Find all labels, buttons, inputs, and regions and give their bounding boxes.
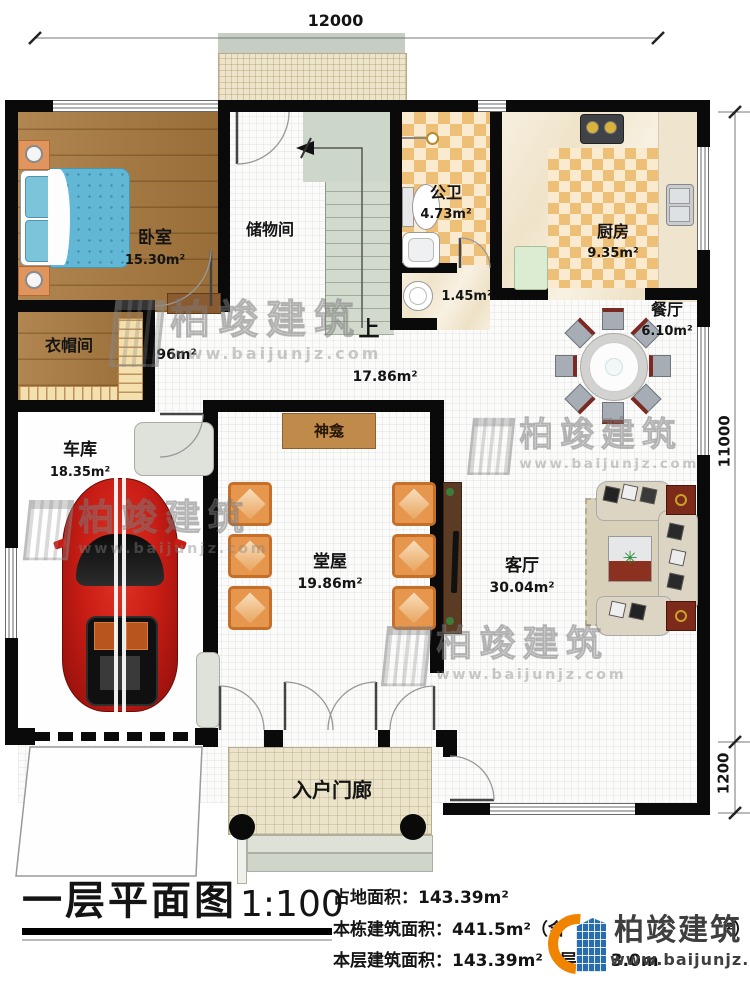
side-table [666, 485, 696, 515]
wash-area-label: 1.45m² [437, 289, 497, 305]
plant-icon [446, 488, 454, 496]
garage-label: 车库18.35m² [40, 440, 120, 483]
dim-top-label: 12000 [298, 11, 373, 31]
wall [5, 100, 18, 745]
wall [18, 300, 155, 312]
kitchen-label: 厨房9.35m² [577, 222, 649, 262]
dining-chair [602, 308, 624, 330]
fridge [514, 246, 548, 290]
page-title: 一层平面图 [22, 876, 237, 926]
plant-icon: ✳ [622, 550, 637, 568]
main-hall-label: 堂屋19.86m² [290, 552, 370, 595]
wall [390, 318, 437, 330]
car-stripe [122, 478, 126, 712]
building-area-label: 本栋建筑面积：441.5m²（含 [333, 920, 565, 941]
dining-chair [649, 355, 671, 377]
bathroom-label: 公卫4.73m² [410, 183, 482, 223]
sofa-pillow [667, 523, 685, 541]
logo-blue-building [576, 918, 606, 972]
porch-step-1 [247, 835, 433, 853]
vanity-basin [408, 238, 434, 262]
wall [378, 730, 390, 747]
nightstand-lamp-icon [25, 271, 43, 289]
hall-chair [392, 482, 436, 526]
round-basin-inner [409, 287, 427, 305]
car-st ripe [114, 478, 118, 712]
kitchen-sink-basin [669, 188, 690, 204]
wall [490, 100, 502, 300]
car [62, 478, 178, 712]
nightstand-lamp-icon [25, 145, 43, 163]
window [478, 100, 506, 112]
title-underline [22, 928, 332, 935]
sofa-pillow [609, 601, 627, 619]
sofa-pillow [667, 573, 685, 591]
hall-area-label: 17.86m² [345, 369, 425, 387]
scale-label: 1:100 [240, 882, 344, 927]
cloakroom-wardrobe-side [118, 318, 143, 412]
hall-chair [228, 534, 272, 578]
shoe-cabinet [167, 293, 221, 314]
wall [203, 400, 444, 412]
side-table [666, 601, 696, 631]
land-area-label: 占地面积：143.39m² [333, 888, 509, 909]
car-engine-detail [126, 622, 148, 650]
porch-label: 入户门廊 [262, 778, 402, 803]
stair-landing [303, 112, 393, 182]
brand-logo-icon [548, 908, 612, 978]
terrace-edge [218, 33, 405, 54]
hall-chair [392, 534, 436, 578]
sofa-pillow [621, 484, 639, 502]
wall [436, 730, 457, 747]
hall-chair [392, 586, 436, 630]
brand-logo-url: www.baijunjz.com [610, 950, 750, 970]
kitchen-mat [548, 148, 658, 288]
dim-right-lower-label: 1200 [715, 743, 734, 803]
wall [5, 400, 155, 412]
brand-logo-name: 柏竣建筑 [614, 912, 742, 950]
hall-chair [228, 482, 272, 526]
sofa-pillow [603, 486, 621, 504]
hall-chair [228, 586, 272, 630]
window [697, 147, 710, 250]
cooktop-burner-icon [586, 121, 599, 134]
bedroom-label: 卧室15.30m² [110, 228, 200, 271]
dining-chair [602, 402, 624, 424]
cloakroom-area-label: 1.96m² [138, 347, 200, 365]
terrace-floor [218, 53, 407, 102]
shrine-label: 神龛 [314, 422, 344, 441]
kitchen-sink-basin [669, 206, 690, 222]
sofa-pillow [669, 549, 687, 567]
wall [218, 100, 230, 312]
wall [203, 728, 218, 747]
dining-table-center [605, 358, 623, 376]
dim-right-upper-label: 11000 [716, 406, 735, 476]
bed-sheet [48, 169, 70, 265]
dining-chair [555, 355, 577, 377]
wall [390, 100, 402, 330]
wall [645, 288, 697, 300]
sofa-pillow [629, 603, 647, 621]
living-label: 客厅30.04m² [484, 556, 560, 599]
porch-step-side [237, 838, 247, 884]
car-engine-detail [94, 622, 116, 650]
wall [5, 728, 35, 745]
stairs-up-label: 上 [356, 316, 382, 342]
storage-label: 储物间 [230, 220, 310, 240]
floor-plan-page: 神龛 ✳ [0, 0, 750, 981]
window [490, 803, 635, 815]
dining-label: 餐厅6.10m² [638, 300, 696, 340]
brand-logo: 柏竣建筑 www.baijunjz.com [548, 906, 750, 981]
stair-steps [325, 182, 394, 335]
towel-bar-icon [402, 137, 428, 139]
towel-ring-icon [426, 132, 439, 145]
cloakroom-label: 衣帽间 [28, 336, 110, 356]
wall [443, 747, 457, 757]
window [5, 548, 18, 638]
porch-step-2 [247, 853, 433, 872]
garage-door-dashed [35, 732, 195, 741]
window [697, 327, 710, 455]
cooktop-burner-icon [604, 121, 617, 134]
door-mat [196, 652, 220, 728]
car-engine-detail [100, 656, 140, 690]
wall [264, 730, 283, 747]
door-mat [134, 422, 214, 476]
shrine-table: 神龛 [282, 413, 376, 449]
title-underline-2 [22, 939, 332, 941]
window [53, 100, 218, 112]
plant-icon [446, 617, 454, 625]
coffee-table: ✳ [608, 536, 652, 582]
sofa-pillow [640, 487, 658, 505]
